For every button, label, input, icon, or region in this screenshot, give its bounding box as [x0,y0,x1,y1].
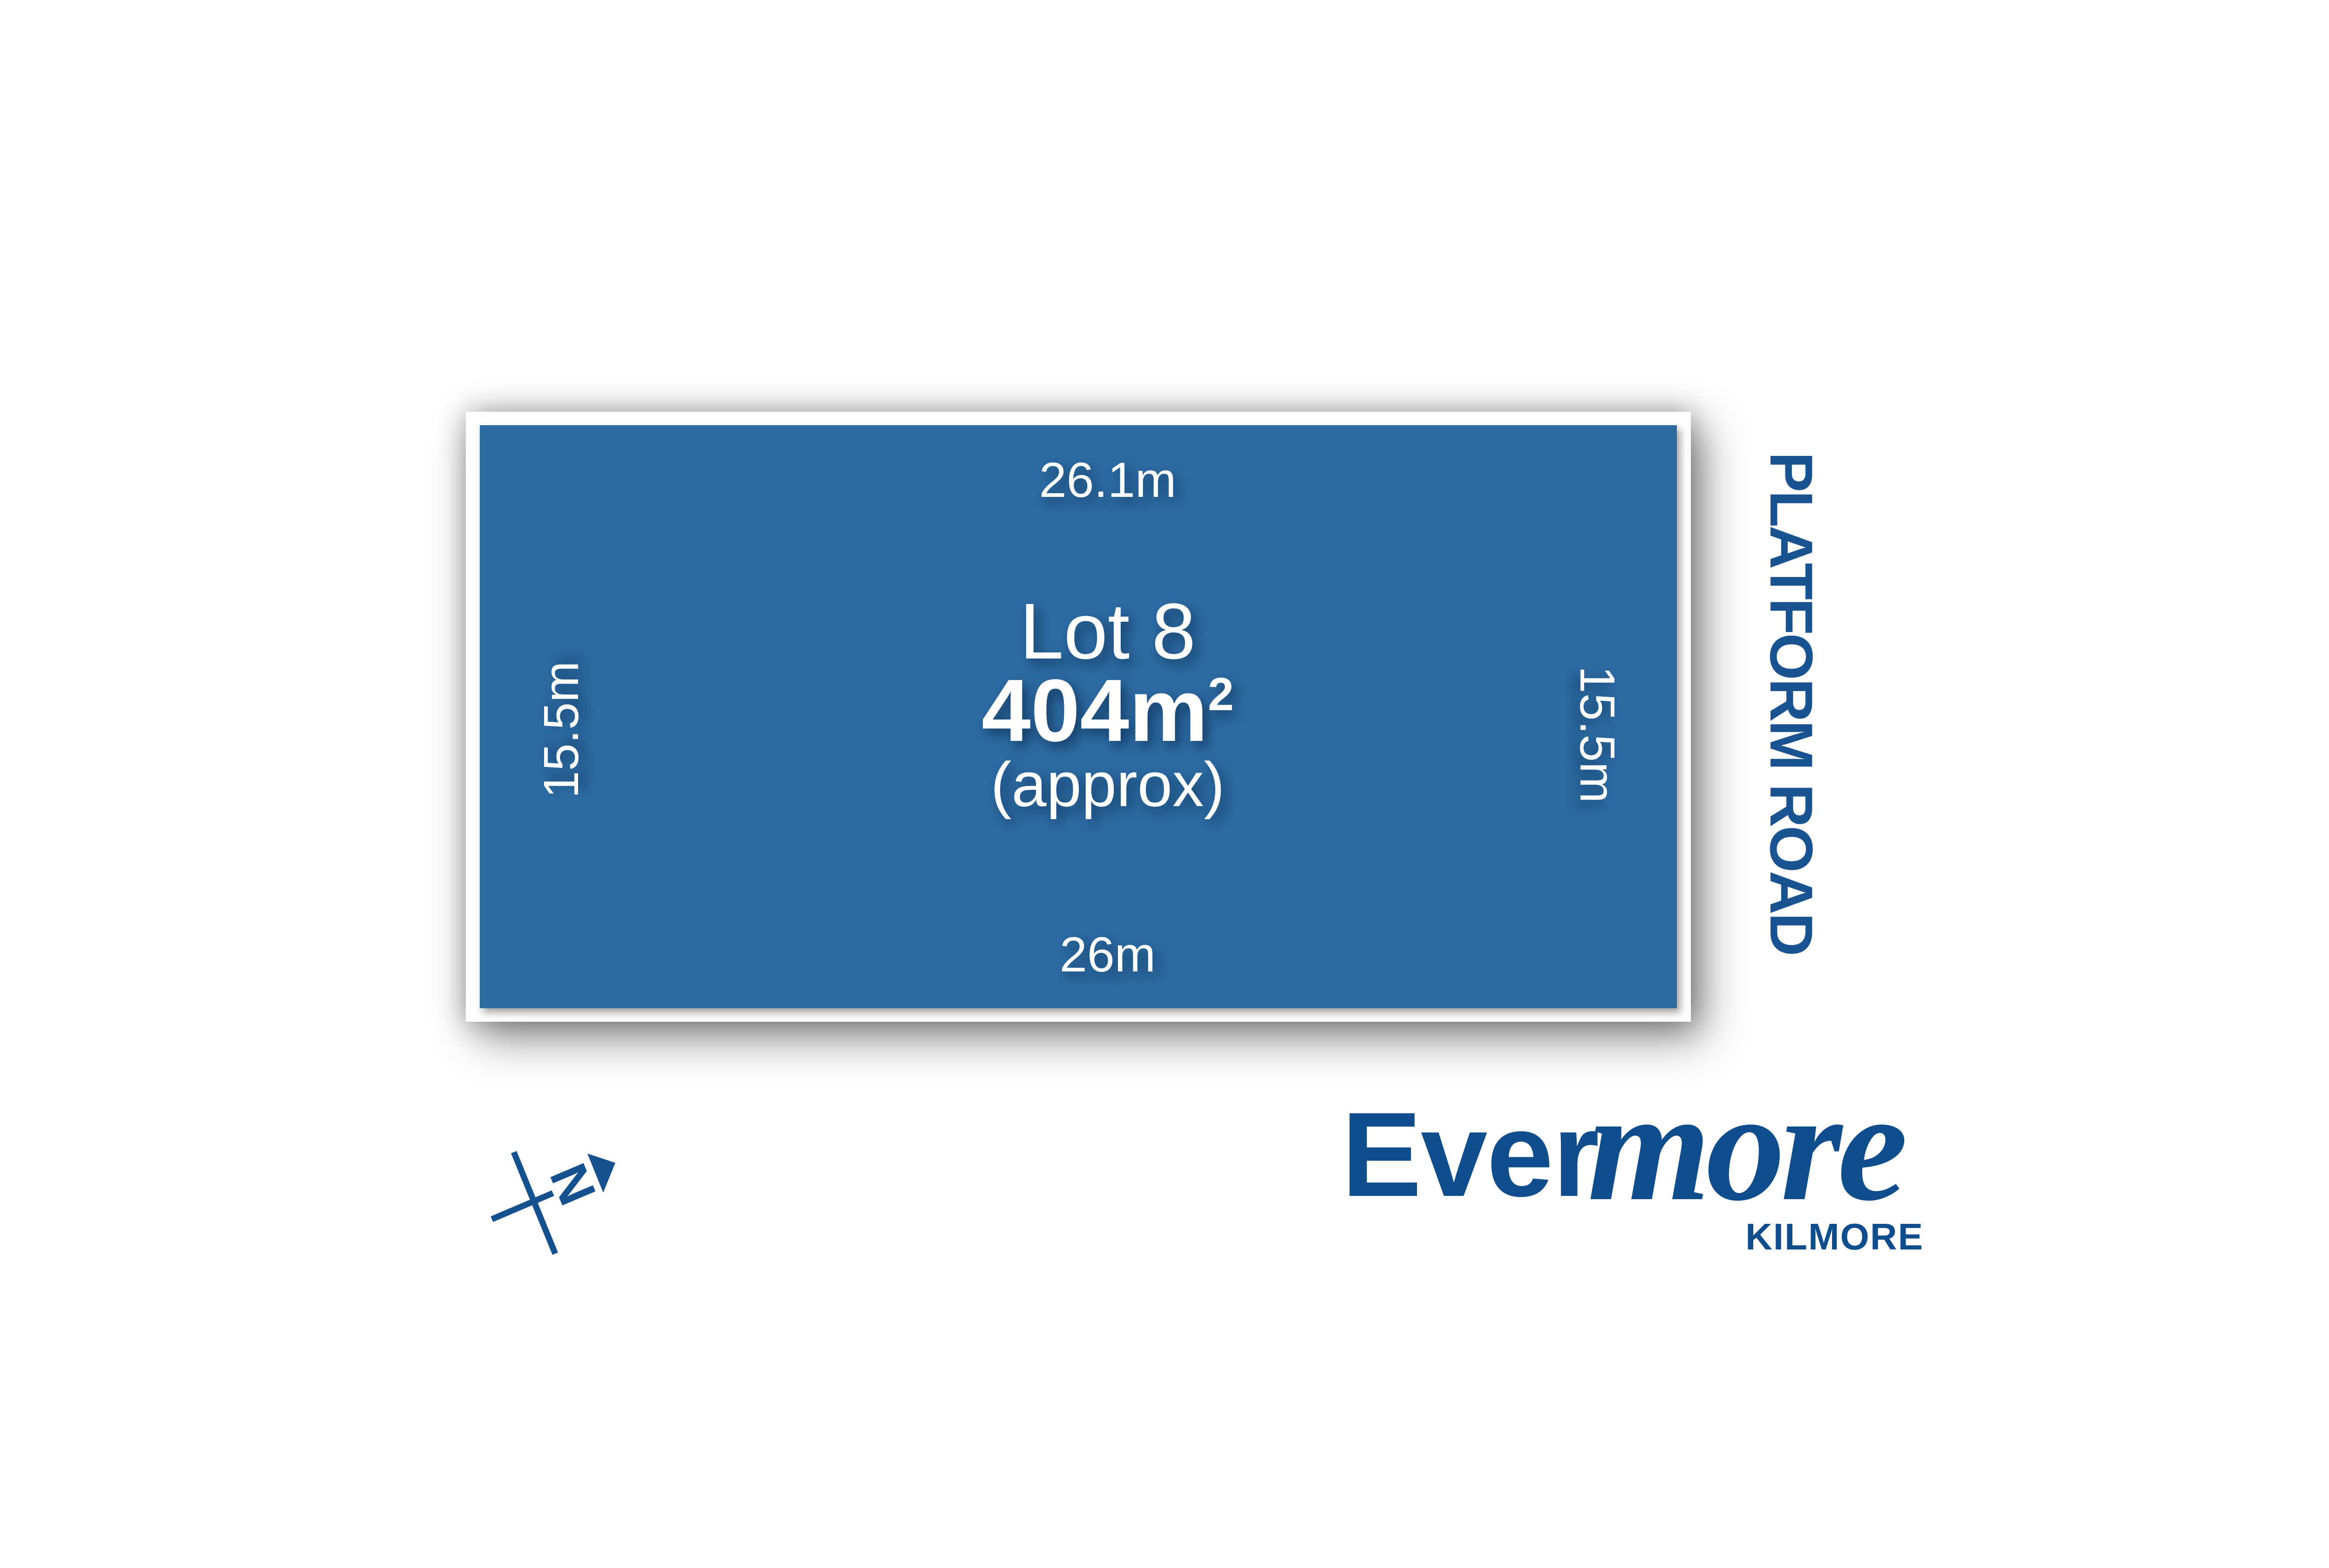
dimension-label-right: 15.5m [1573,666,1622,803]
lot-area: 404m2 [981,666,1234,755]
north-arrow-icon: N [466,1108,699,1341]
lot-area-qualifier: (approx) [991,753,1225,816]
lot-area-value: 404m [981,661,1208,760]
dimension-label-left: 15.5m [537,661,586,799]
lot-parcel: 26.1m Lot 8 404m2 (approx) 26m 15.5m 15.… [480,425,1677,1008]
dimension-label-bottom: 26m [1060,930,1156,979]
lot-plan-canvas: 26.1m Lot 8 404m2 (approx) 26m 15.5m 15.… [0,0,2329,1568]
brand-word-ever: Ever [1342,1094,1598,1215]
lot-title: Lot 8 [1020,592,1196,671]
lot-card: 26.1m Lot 8 404m2 (approx) 26m 15.5m 15.… [466,412,1691,1022]
dimension-label-top: 26.1m [1039,455,1177,505]
road-name-label: PLATFORM ROAD [1761,452,1822,954]
lot-area-superscript: 2 [1208,668,1234,720]
north-arrow-crossbar [492,1193,553,1219]
brand-suburb: KILMORE [1723,1218,1924,1256]
brand-word-more: more [1587,1067,1903,1225]
